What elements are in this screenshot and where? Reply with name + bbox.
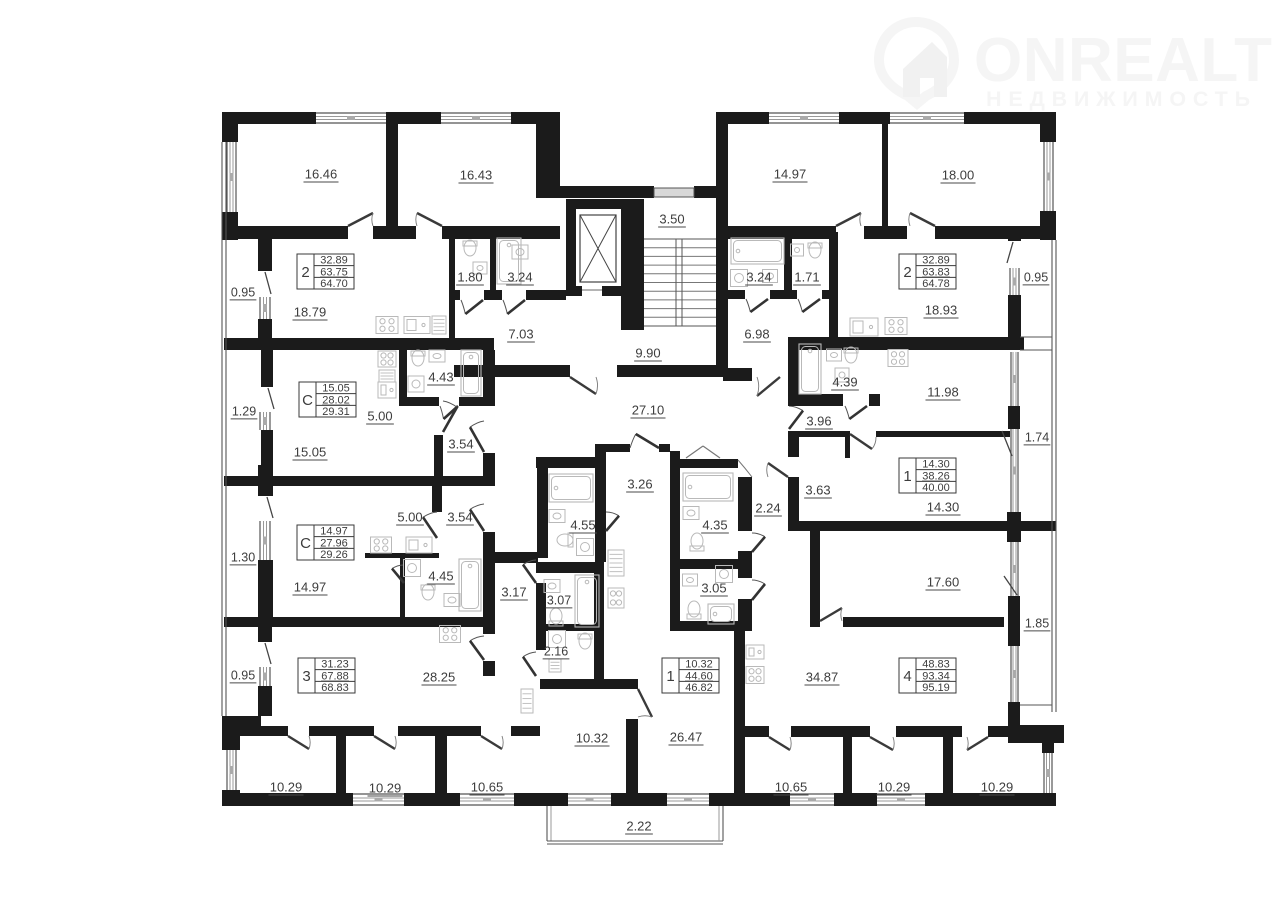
svg-text:67.88: 67.88 xyxy=(321,670,349,682)
svg-text:64.70: 64.70 xyxy=(320,278,348,290)
svg-text:18.93: 18.93 xyxy=(925,303,958,318)
svg-text:27.96: 27.96 xyxy=(320,537,348,549)
svg-text:48.83: 48.83 xyxy=(922,659,950,671)
svg-text:1.30: 1.30 xyxy=(231,550,255,564)
svg-text:1.85: 1.85 xyxy=(1025,616,1049,630)
svg-text:0.95: 0.95 xyxy=(1024,270,1048,284)
svg-text:10.65: 10.65 xyxy=(775,780,808,795)
svg-text:1: 1 xyxy=(666,668,674,685)
svg-text:4.43: 4.43 xyxy=(428,370,453,385)
svg-text:2.24: 2.24 xyxy=(755,501,780,516)
svg-text:0.95: 0.95 xyxy=(231,285,255,299)
svg-text:31.23: 31.23 xyxy=(321,659,349,671)
svg-text:15.05: 15.05 xyxy=(322,383,350,395)
svg-text:1.80: 1.80 xyxy=(457,270,482,285)
svg-text:14.30: 14.30 xyxy=(922,459,950,471)
svg-text:17.60: 17.60 xyxy=(927,575,960,590)
svg-text:38.26: 38.26 xyxy=(922,470,950,482)
svg-text:3.50: 3.50 xyxy=(659,212,684,227)
svg-text:4.45: 4.45 xyxy=(428,569,453,584)
svg-text:4: 4 xyxy=(903,668,911,685)
svg-text:11.98: 11.98 xyxy=(927,385,959,400)
svg-text:3: 3 xyxy=(302,668,310,685)
svg-text:3.54: 3.54 xyxy=(447,510,472,525)
svg-text:4.55: 4.55 xyxy=(570,518,595,533)
svg-text:НЕДВИЖИМОСТЬ: НЕДВИЖИМОСТЬ xyxy=(986,87,1257,111)
svg-text:10.32: 10.32 xyxy=(685,659,713,671)
svg-text:5.00: 5.00 xyxy=(367,409,392,424)
svg-text:34.87: 34.87 xyxy=(806,670,839,685)
svg-text:9.90: 9.90 xyxy=(635,346,660,361)
svg-text:44.60: 44.60 xyxy=(685,670,713,682)
svg-text:10.32: 10.32 xyxy=(576,731,609,746)
svg-text:15.05: 15.05 xyxy=(294,445,327,460)
svg-text:2.22: 2.22 xyxy=(626,819,651,834)
svg-text:4.39: 4.39 xyxy=(832,375,857,390)
svg-text:5.00: 5.00 xyxy=(397,510,422,525)
svg-text:28.02: 28.02 xyxy=(322,394,350,406)
svg-text:3.05: 3.05 xyxy=(701,581,726,596)
svg-text:27.10: 27.10 xyxy=(632,403,665,418)
svg-text:10.29: 10.29 xyxy=(270,780,303,795)
svg-text:2: 2 xyxy=(903,264,911,281)
svg-text:2.16: 2.16 xyxy=(544,644,568,658)
svg-text:32.89: 32.89 xyxy=(922,255,950,267)
svg-text:3.07: 3.07 xyxy=(547,593,571,607)
svg-text:40.00: 40.00 xyxy=(922,482,950,494)
svg-text:16.43: 16.43 xyxy=(460,168,493,183)
svg-text:3.24: 3.24 xyxy=(746,270,771,285)
svg-text:3.17: 3.17 xyxy=(501,585,526,600)
svg-text:1.71: 1.71 xyxy=(794,270,819,285)
svg-text:2: 2 xyxy=(301,264,309,281)
svg-text:1.29: 1.29 xyxy=(232,404,256,418)
svg-text:10.65: 10.65 xyxy=(471,780,504,795)
svg-text:6.98: 6.98 xyxy=(744,327,769,342)
svg-text:14.97: 14.97 xyxy=(294,580,327,595)
svg-text:64.78: 64.78 xyxy=(922,278,950,290)
svg-text:95.19: 95.19 xyxy=(922,682,950,694)
svg-text:3.96: 3.96 xyxy=(806,414,831,429)
svg-text:93.34: 93.34 xyxy=(922,670,950,682)
svg-text:ONREALT: ONREALT xyxy=(974,26,1273,95)
svg-text:18.79: 18.79 xyxy=(294,305,327,320)
svg-text:28.25: 28.25 xyxy=(423,670,456,685)
svg-text:63.83: 63.83 xyxy=(922,266,950,278)
svg-text:10.29: 10.29 xyxy=(369,781,402,796)
svg-text:29.26: 29.26 xyxy=(320,549,348,561)
svg-text:С: С xyxy=(300,535,311,552)
svg-text:26.47: 26.47 xyxy=(670,730,703,745)
svg-text:3.54: 3.54 xyxy=(448,437,473,452)
svg-text:0.95: 0.95 xyxy=(231,668,255,682)
svg-text:14.97: 14.97 xyxy=(320,526,348,538)
svg-text:3.26: 3.26 xyxy=(627,477,652,492)
svg-text:10.29: 10.29 xyxy=(878,780,911,795)
svg-text:18.00: 18.00 xyxy=(942,168,975,183)
svg-text:3.24: 3.24 xyxy=(507,270,532,285)
svg-text:1: 1 xyxy=(903,468,911,485)
svg-text:7.03: 7.03 xyxy=(508,327,533,342)
svg-text:С: С xyxy=(302,392,313,409)
svg-text:14.97: 14.97 xyxy=(774,167,807,182)
svg-text:3.63: 3.63 xyxy=(805,483,830,498)
svg-text:4.35: 4.35 xyxy=(702,518,727,533)
svg-text:16.46: 16.46 xyxy=(305,167,338,182)
svg-text:10.29: 10.29 xyxy=(981,780,1014,795)
svg-text:29.31: 29.31 xyxy=(322,406,350,418)
svg-text:1.74: 1.74 xyxy=(1025,430,1049,444)
svg-text:63.75: 63.75 xyxy=(320,266,348,278)
svg-text:46.82: 46.82 xyxy=(685,682,713,694)
svg-text:68.83: 68.83 xyxy=(321,682,349,694)
svg-text:14.30: 14.30 xyxy=(927,500,960,515)
svg-text:32.89: 32.89 xyxy=(320,255,348,267)
